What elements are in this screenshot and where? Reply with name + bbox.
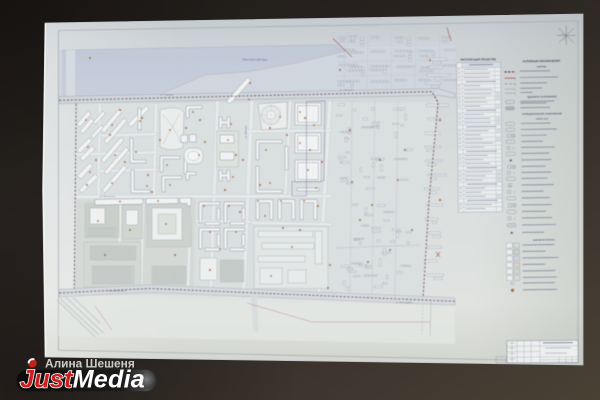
svg-text:ЭКСПЛИКАЦИЯ ОБЪЕКТОВ: ЭКСПЛИКАЦИЯ ОБЪЕКТОВ [460, 57, 496, 61]
svg-text:ЗДАНИЯ И СООРУЖЕНИЯ: ЗДАНИЯ И СООРУЖЕНИЯ [527, 95, 557, 98]
svg-text:JustMedia: JustMedia [20, 365, 145, 393]
svg-text:природный комплекс: природный комплекс [533, 238, 556, 241]
svg-text:границы: границы [537, 66, 547, 68]
svg-text:Транссибирская ул.: Транссибирская ул. [108, 291, 127, 293]
svg-text:УСЛОВНЫЕ ОБОЗНАЧЕНИЯ: УСЛОВНЫЕ ОБОЗНАЧЕНИЯ [523, 59, 561, 64]
svg-text:Верх-Исетский пруд: Верх-Исетский пруд [243, 58, 268, 62]
svg-text:ул. Мельникова: ул. Мельникова [100, 196, 116, 198]
svg-text:ФУНКЦИОНАЛЬНОЕ ЗОНИРОВАНИЕ: ФУНКЦИОНАЛЬНОЕ ЗОНИРОВАНИЕ [522, 112, 562, 116]
svg-text:жилая зона: жилая зона [535, 118, 549, 120]
svg-text:ул. Татищева: ул. Татищева [340, 89, 354, 91]
svg-text:ул. Пирогова: ул. Пирогова [246, 125, 248, 138]
svg-text:ул. Металлургов: ул. Металлургов [396, 302, 413, 304]
svg-text:ул. Татищева: ул. Татищева [160, 94, 174, 96]
